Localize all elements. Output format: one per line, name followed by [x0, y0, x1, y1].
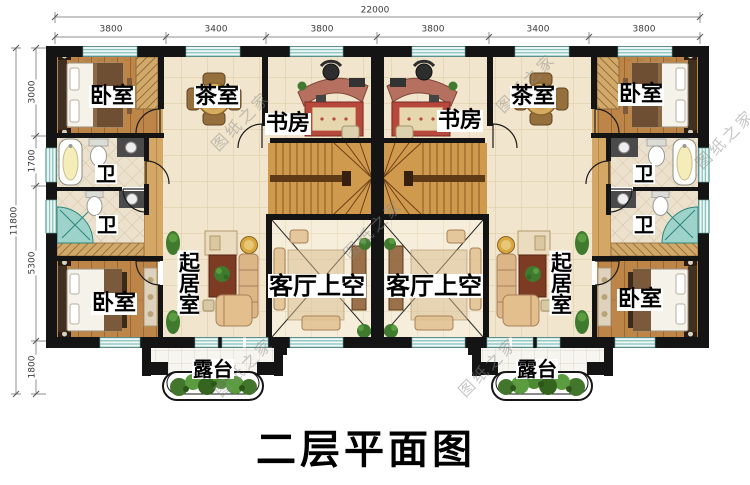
room-label-bedroom-top-left: 卧室 [89, 86, 135, 108]
dimension-left-seg-1: 3000 [29, 80, 38, 105]
floor-plan-drawing [0, 0, 750, 485]
floor-plan-canvas: 图纸之家 图纸之家 图纸之家 图纸之家 图纸之家 图纸之家 22000 3800… [0, 0, 750, 485]
dimension-total-height: 11800 [11, 206, 20, 237]
room-label-living-room-right: 起居室 [550, 251, 571, 316]
room-label-bath-right-1: 卫 [633, 164, 655, 184]
dimension-top-seg-2: 3400 [204, 26, 229, 35]
room-label-living-room-left: 起居室 [178, 251, 199, 316]
room-label-living-void-right: 客厅上空 [385, 274, 483, 298]
room-label-bath-right-2: 卫 [633, 215, 655, 235]
room-label-bath-left-2: 卫 [96, 215, 118, 235]
dimension-top-seg-5: 3400 [526, 26, 551, 35]
dimension-top-seg-3: 3800 [310, 26, 335, 35]
dimension-total-width: 22000 [360, 7, 391, 16]
room-label-bedroom-bottom-right: 卧室 [617, 289, 663, 311]
dimension-top-seg-4: 3800 [421, 26, 446, 35]
room-label-tea-room-left: 茶室 [194, 86, 240, 108]
room-label-bedroom-top-right: 卧室 [618, 84, 664, 106]
room-label-terrace-left: 露台 [192, 359, 234, 379]
room-label-bedroom-bottom-left: 卧室 [91, 293, 137, 315]
plan-title: 二层平面图 [256, 430, 476, 470]
dimension-left-seg-3: 5300 [29, 251, 38, 276]
dimension-top-seg-6: 3800 [632, 26, 657, 35]
room-label-living-void-left: 客厅上空 [268, 274, 366, 298]
room-label-study-left: 书房 [265, 113, 311, 135]
dimension-left-seg-4: 1800 [29, 355, 38, 380]
room-label-terrace-right: 露台 [516, 359, 558, 379]
room-label-tea-room-right: 茶室 [510, 86, 556, 108]
dimension-left-seg-2: 1700 [29, 149, 38, 174]
room-label-bath-left-1: 卫 [95, 164, 117, 184]
dimension-top-seg-1: 3800 [99, 26, 124, 35]
room-label-study-right: 书房 [437, 110, 483, 132]
